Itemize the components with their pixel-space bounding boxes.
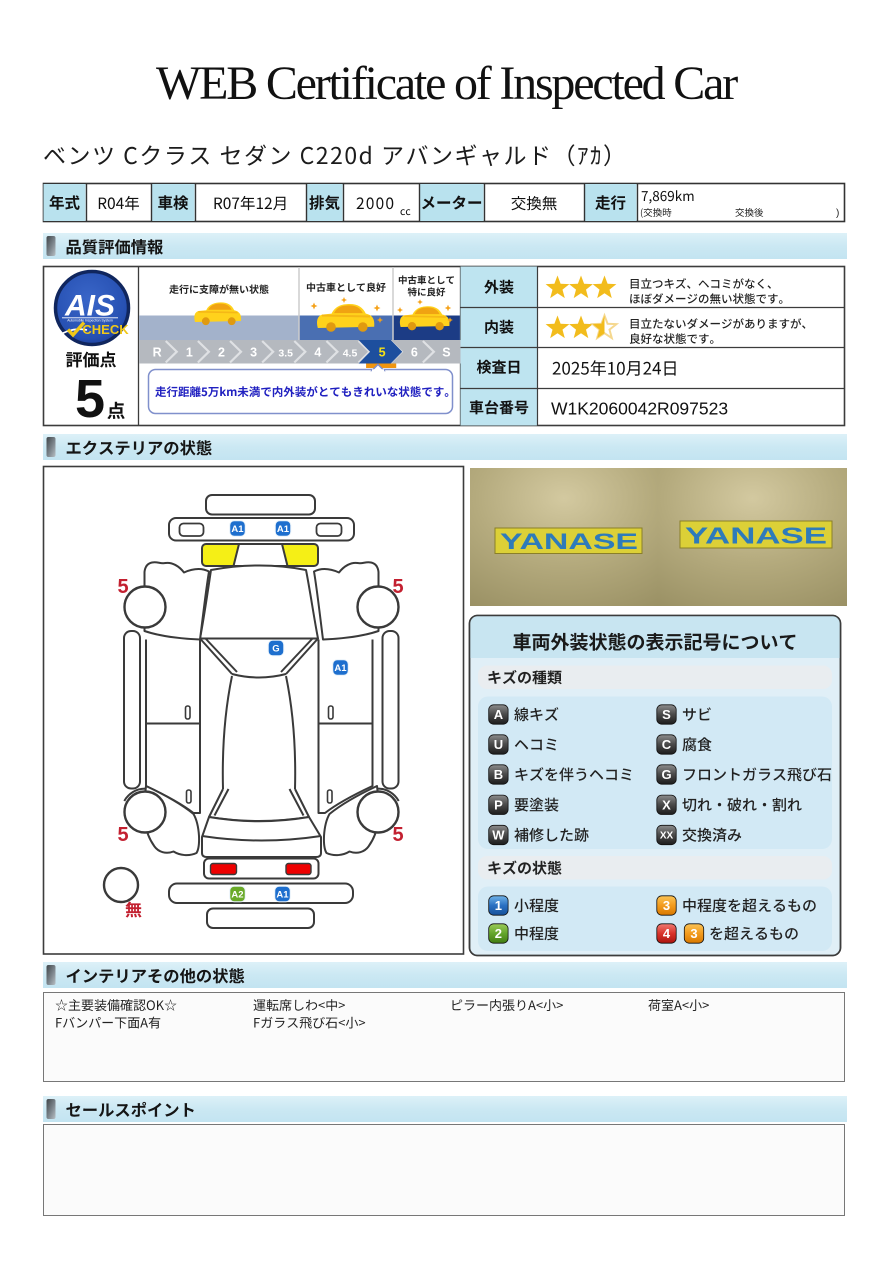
svg-text:G: G — [272, 643, 279, 654]
svg-text:4: 4 — [663, 926, 671, 941]
svg-text:): ) — [836, 208, 839, 219]
svg-text:1: 1 — [495, 898, 502, 913]
svg-text:WEB Certificate of Inspected C: WEB Certificate of Inspected Car — [156, 57, 738, 110]
svg-text:A2: A2 — [231, 889, 243, 900]
svg-text:G: G — [661, 767, 671, 782]
svg-text:3: 3 — [250, 346, 257, 360]
svg-text:A1: A1 — [277, 524, 290, 535]
svg-text:2: 2 — [495, 926, 502, 941]
svg-text:CHECK: CHECK — [82, 322, 129, 337]
svg-text:B: B — [494, 767, 503, 782]
svg-text:A: A — [494, 707, 504, 722]
svg-text:5: 5 — [117, 576, 128, 598]
svg-text:1: 1 — [186, 346, 193, 360]
svg-text:5: 5 — [392, 576, 403, 598]
svg-text:W1K2060042R097523: W1K2060042R097523 — [551, 399, 728, 419]
svg-text:P: P — [494, 797, 503, 812]
svg-text:YANASE: YANASE — [500, 529, 638, 554]
svg-text:A1: A1 — [334, 663, 347, 674]
svg-text:3: 3 — [663, 898, 670, 913]
svg-text:XX: XX — [660, 831, 674, 842]
svg-text:X: X — [662, 797, 671, 812]
svg-text:5: 5 — [117, 824, 128, 846]
svg-text:5: 5 — [392, 824, 403, 846]
svg-text:3.5: 3.5 — [278, 348, 293, 360]
svg-text:6: 6 — [411, 346, 418, 360]
svg-text:A1: A1 — [231, 524, 244, 535]
svg-text:C: C — [662, 737, 672, 752]
svg-text:5: 5 — [379, 346, 386, 360]
svg-text:W: W — [492, 828, 505, 843]
svg-text:3: 3 — [690, 926, 697, 941]
svg-text:S: S — [442, 346, 450, 360]
svg-text:4: 4 — [314, 346, 321, 360]
svg-text:R: R — [153, 346, 162, 360]
svg-text:S: S — [662, 707, 671, 722]
svg-text:YANASE: YANASE — [685, 523, 827, 549]
svg-text:U: U — [494, 737, 503, 752]
svg-text:4.5: 4.5 — [343, 348, 358, 360]
svg-text:2: 2 — [218, 346, 225, 360]
svg-text:A1: A1 — [276, 889, 289, 900]
svg-text:5: 5 — [75, 369, 105, 429]
